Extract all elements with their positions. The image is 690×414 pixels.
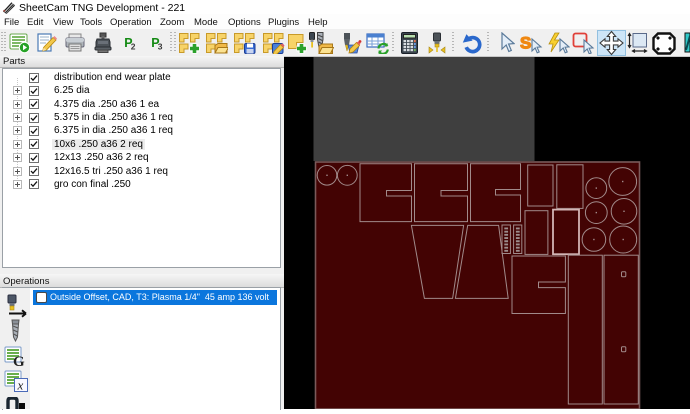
svg-text:G: G: [13, 354, 25, 369]
svg-text:x: x: [17, 378, 24, 393]
svg-text:S: S: [520, 34, 531, 53]
svg-text:3: 3: [158, 42, 163, 52]
svg-text:2: 2: [131, 42, 136, 52]
